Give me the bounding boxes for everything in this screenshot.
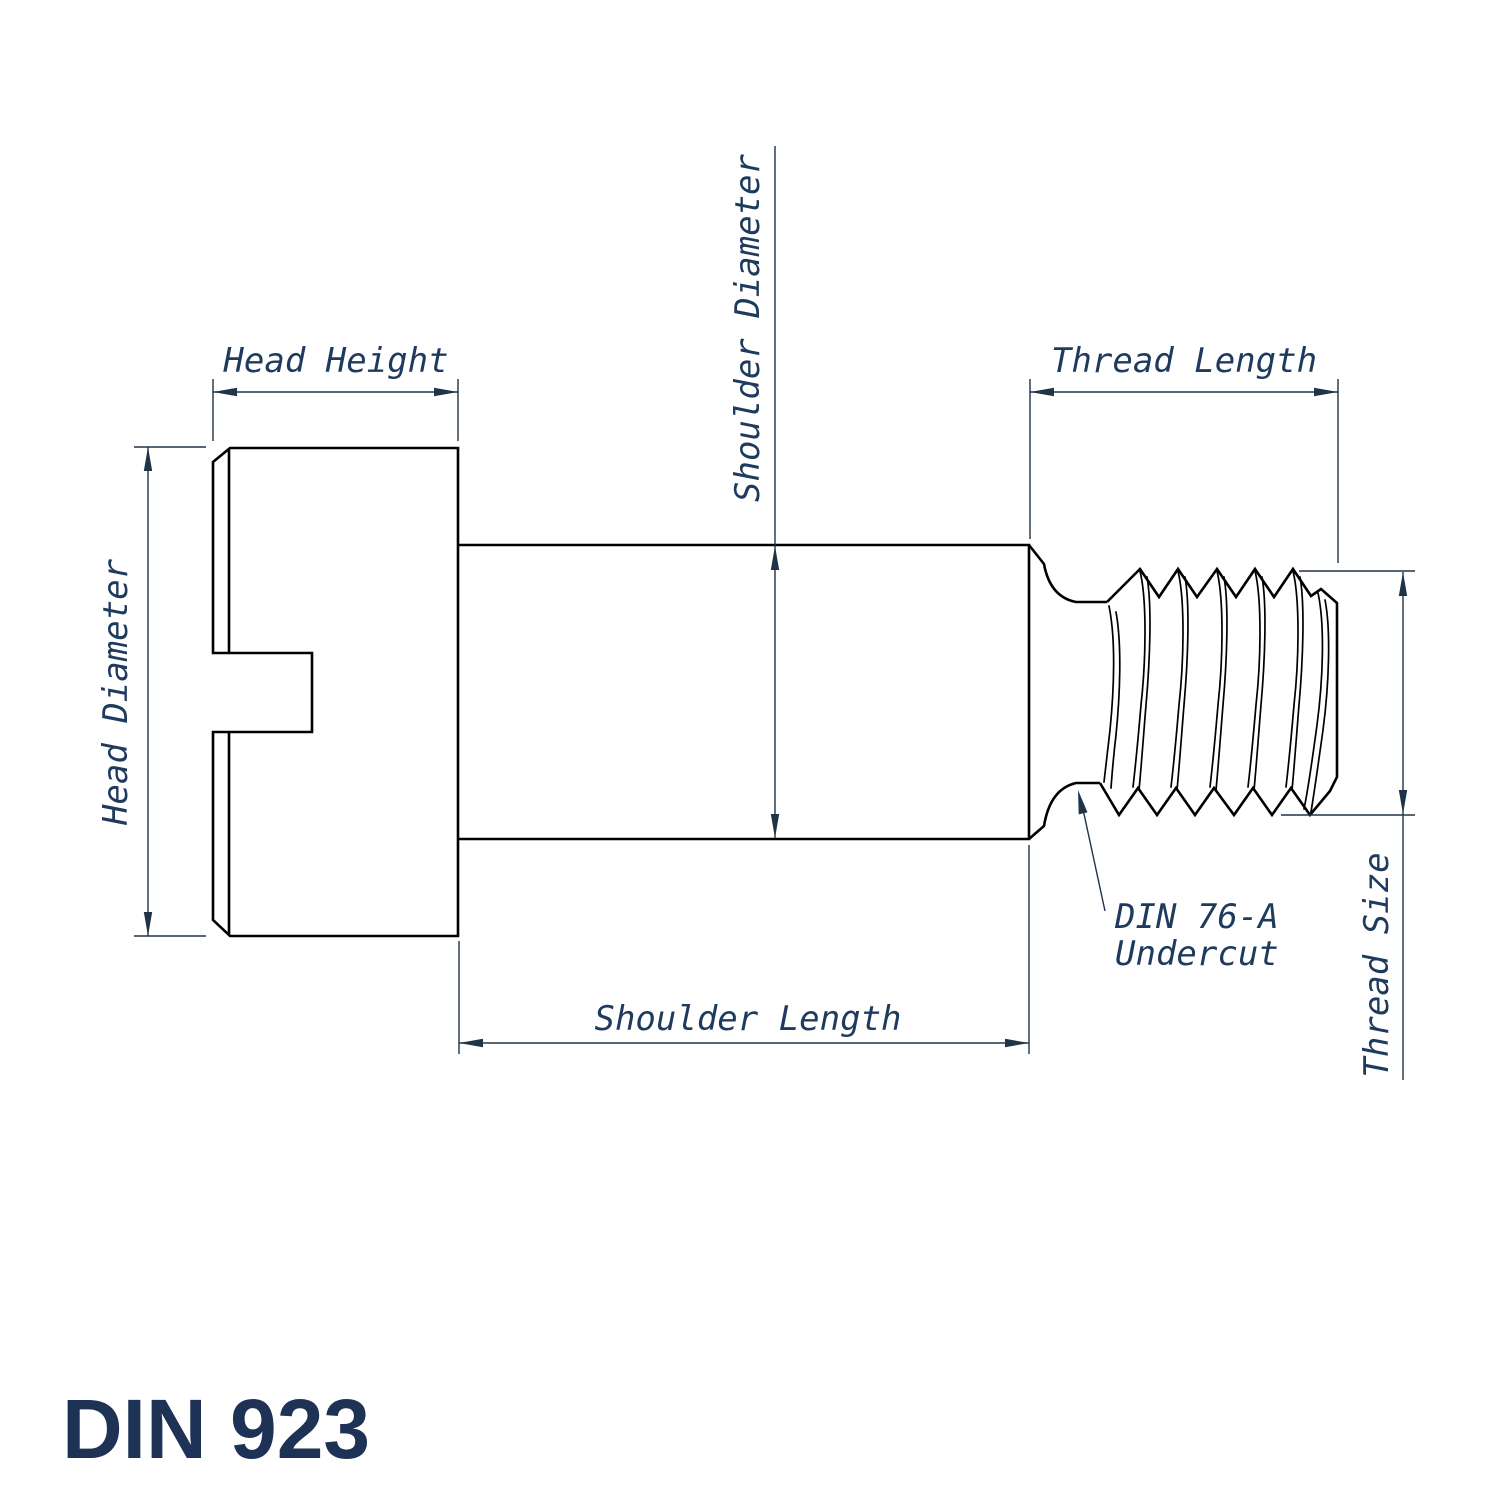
thread-length-arrow-right [1314,388,1338,396]
head-diameter-extension-lines [134,447,206,936]
undercut-note-line1: DIN 76-A [1114,897,1279,937]
head-diameter-arrow-down [144,912,152,936]
undercut-leader-line [1081,800,1105,911]
dimension-shoulder-length: Shoulder Length [459,845,1029,1054]
shoulder-diameter-arrow-up [771,546,779,570]
screw-head-outline [213,448,458,936]
head-height-extension-lines [213,379,458,441]
head-height-label: Head Height [222,341,448,381]
thread-size-arrow-down [1399,790,1407,814]
shoulder-diameter-arrow-down [771,814,779,838]
thread-size-label: Thread Size [1357,852,1397,1077]
undercut-neck-top [1029,545,1107,602]
head-diameter-arrow-up [144,447,152,471]
technical-drawing-page: Head Height Head Diameter Shoulder Diame… [0,0,1505,1500]
shoulder-length-label: Shoulder Length [594,999,901,1039]
thread-length-arrow-left [1030,388,1054,396]
page-title: DIN 923 [62,1382,370,1476]
head-diameter-label: Head Diameter [96,558,136,826]
dimension-shoulder-diameter: Shoulder Diameter [728,146,779,838]
dimension-head-diameter: Head Diameter [96,447,206,936]
din-923-drawing: Head Height Head Diameter Shoulder Diame… [0,0,1505,1500]
thread-length-extension-lines [1030,379,1338,563]
dimension-head-height: Head Height [213,341,458,441]
undercut-leader-arrow [1078,790,1088,814]
thread-size-arrow-up [1399,572,1407,596]
shoulder-length-arrow-left [459,1039,483,1047]
thread-size-extension-lines [1281,571,1415,815]
shoulder-length-arrow-right [1005,1039,1029,1047]
undercut-note-line2: Undercut [1115,934,1279,974]
dimension-thread-length: Thread Length [1030,341,1338,563]
head-height-arrow-left [213,388,237,396]
shoulder-diameter-label: Shoulder Diameter [728,153,768,502]
head-height-arrow-right [434,388,458,396]
dimension-thread-size: Thread Size [1281,571,1415,1080]
thread-length-label: Thread Length [1051,341,1317,381]
thread-helix-lines [1104,571,1329,812]
undercut-leader-note: DIN 76-A Undercut [1078,790,1279,974]
screw-shoulder-outline [458,545,1029,839]
undercut-neck-bottom [1029,783,1100,839]
